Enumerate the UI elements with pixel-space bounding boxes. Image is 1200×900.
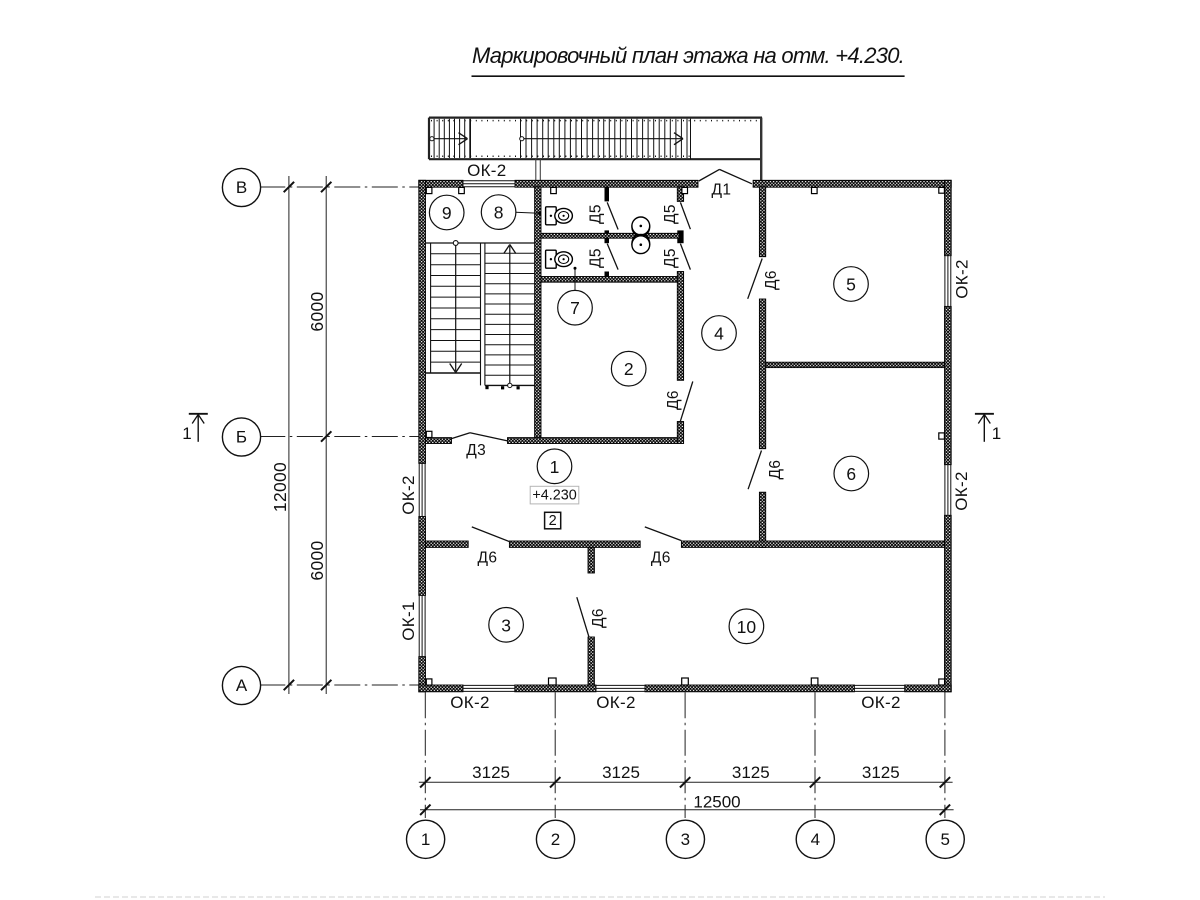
svg-text:ОК-2: ОК-2 [467,161,506,180]
svg-text:3125: 3125 [862,763,900,782]
svg-text:12000: 12000 [270,462,290,512]
svg-text:3125: 3125 [472,763,510,782]
svg-text:Д6: Д6 [477,549,497,566]
svg-text:ОК-2: ОК-2 [952,471,971,510]
svg-text:В: В [236,178,247,197]
svg-text:ОК-2: ОК-2 [953,259,972,298]
svg-text:9: 9 [442,203,452,223]
svg-text:Д6: Д6 [651,549,671,566]
svg-text:4: 4 [714,324,724,344]
svg-text:Д6: Д6 [590,608,607,628]
svg-text:1: 1 [421,830,430,849]
svg-text:Д3: Д3 [466,442,486,459]
svg-text:6000: 6000 [307,291,327,331]
svg-text:2: 2 [551,830,560,849]
svg-text:ОК-2: ОК-2 [450,693,489,712]
svg-text:Д5: Д5 [662,204,679,224]
svg-text:4: 4 [811,830,820,849]
svg-text:3: 3 [501,615,511,635]
svg-text:Д6: Д6 [763,270,780,290]
svg-text:Д6: Д6 [767,460,784,480]
svg-text:6000: 6000 [307,540,327,580]
svg-text:6: 6 [846,464,856,484]
svg-text:1: 1 [182,424,191,443]
svg-text:Б: Б [236,428,247,447]
svg-text:ОК-2: ОК-2 [861,693,900,712]
svg-text:1: 1 [992,424,1001,443]
svg-text:3: 3 [681,830,690,849]
svg-text:7: 7 [570,298,580,318]
svg-text:+4.230: +4.230 [532,487,576,503]
svg-text:2: 2 [549,513,557,529]
svg-text:Д5: Д5 [587,204,604,224]
svg-text:1: 1 [550,457,560,477]
svg-text:А: А [236,676,248,695]
svg-text:5: 5 [846,275,856,295]
svg-text:12500: 12500 [693,792,740,811]
svg-text:Д6: Д6 [665,390,682,410]
svg-text:3125: 3125 [602,763,640,782]
svg-text:8: 8 [494,203,504,223]
svg-text:2: 2 [624,359,634,379]
svg-text:Маркировочный план этажа на от: Маркировочный план этажа на отм. +4.230. [472,43,904,68]
svg-text:3125: 3125 [732,763,770,782]
svg-text:ОК-1: ОК-1 [399,601,418,640]
svg-text:Д5: Д5 [662,248,679,268]
svg-text:10: 10 [737,617,757,637]
svg-text:ОК-2: ОК-2 [399,475,418,514]
svg-text:ОК-2: ОК-2 [596,693,635,712]
svg-text:Д5: Д5 [587,248,604,268]
svg-text:5: 5 [940,830,949,849]
svg-text:Д1: Д1 [712,181,732,198]
